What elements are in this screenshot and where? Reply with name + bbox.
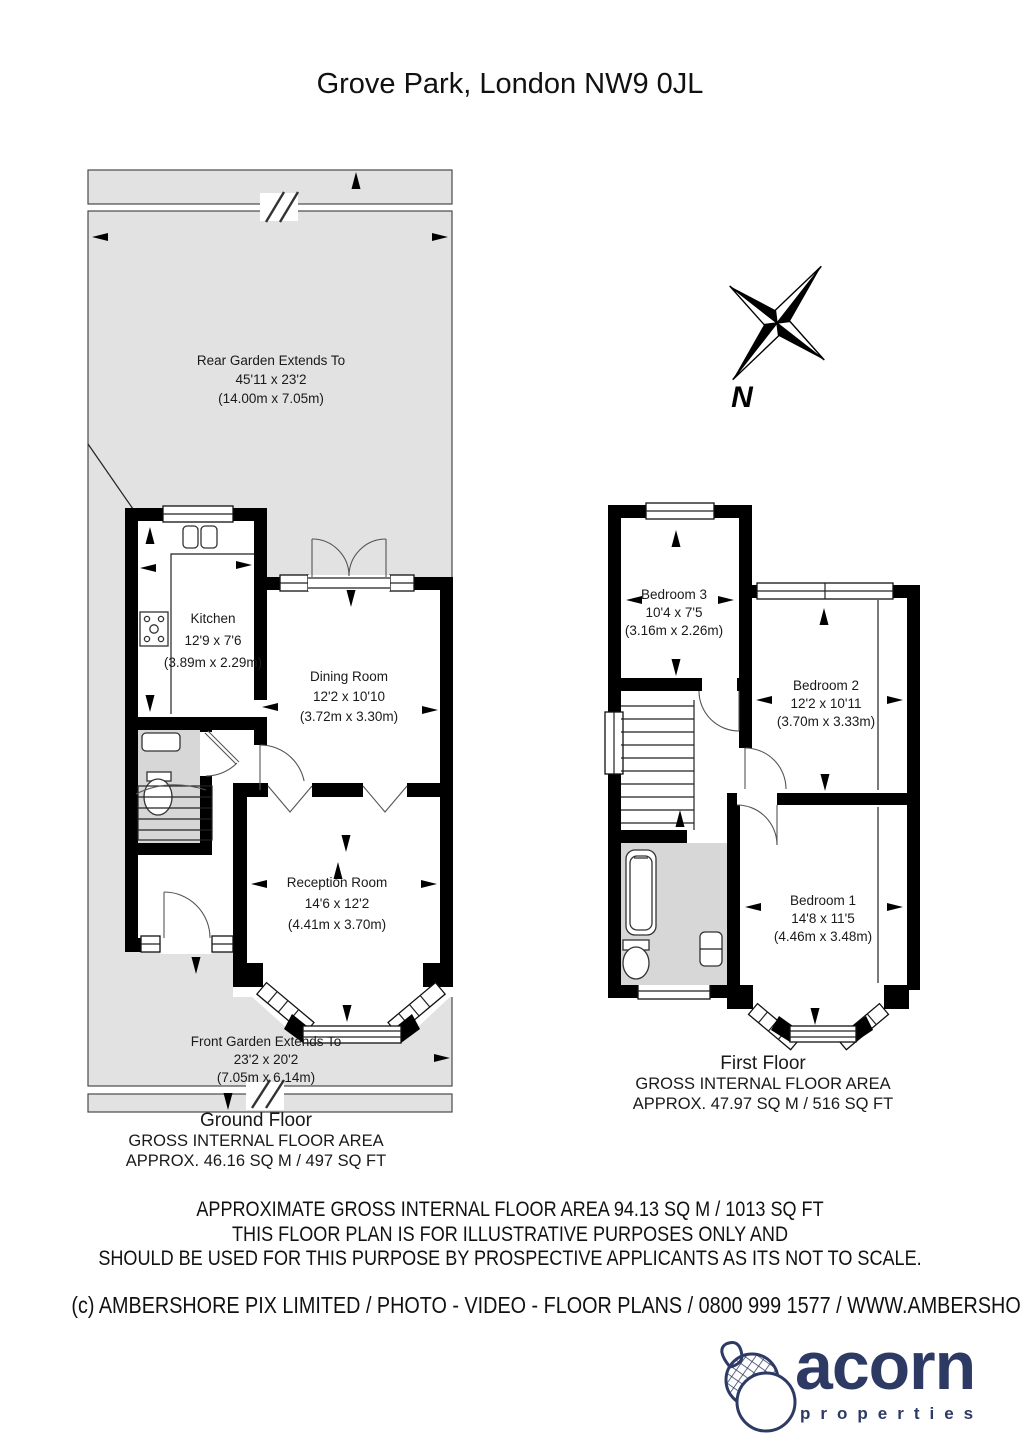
first-floor-area-label: GROSS INTERNAL FLOOR AREA <box>635 1075 890 1093</box>
kitchen-label: Kitchen <box>190 611 235 626</box>
wc-basin <box>142 733 180 751</box>
bedroom2-label: Bedroom 2 <box>793 678 859 693</box>
reception-room-label: Reception Room <box>287 875 388 890</box>
disclaimer-line-1: APPROXIMATE GROSS INTERNAL FLOOR AREA 94… <box>71 1198 948 1222</box>
acorn-icon <box>708 1340 798 1435</box>
logo-tagline-text: properties <box>800 1404 983 1424</box>
disclaimer-line-3: SHOULD BE USED FOR THIS PURPOSE BY PROSP… <box>71 1247 948 1271</box>
bedroom3-size-metric: (3.16m x 2.26m) <box>625 623 723 638</box>
disclaimer-line-2: THIS FLOOR PLAN IS FOR ILLUSTRATIVE PURP… <box>71 1223 948 1247</box>
floorplan-page: Grove Park, London NW9 0JL <box>0 0 1020 1441</box>
kitchen-hob <box>140 612 168 646</box>
dining-room-label: Dining Room <box>310 669 388 684</box>
compass-north-label: N <box>731 381 754 414</box>
ground-floor-plan: Rear Garden Extends To 45'11 x 23'2 (14.… <box>88 170 453 1170</box>
bedroom1-label: Bedroom 1 <box>790 893 856 908</box>
kitchen-window <box>163 506 233 522</box>
bedroom2-size-metric: (3.70m x 3.33m) <box>777 714 875 729</box>
reception-room-size-metric: (4.41m x 3.70m) <box>288 917 386 932</box>
kitchen-size-imperial: 12'9 x 7'6 <box>185 633 242 648</box>
bathroom <box>621 843 727 985</box>
first-floor-plan: Bedroom 3 10'4 x 7'5 (3.16m x 2.26m) Bed… <box>605 503 920 1113</box>
ground-floor-caption: Ground Floor <box>200 1110 313 1131</box>
bedroom3-size-imperial: 10'4 x 7'5 <box>646 605 703 620</box>
kitchen-size-metric: (3.89m x 2.29m) <box>164 655 262 670</box>
bedroom1-size-imperial: 14'8 x 11'5 <box>791 911 854 926</box>
dining-room-size-metric: (3.72m x 3.30m) <box>300 709 398 724</box>
reception-room-size-imperial: 14'6 x 12'2 <box>305 896 369 911</box>
dining-room-size-imperial: 12'2 x 10'10 <box>313 689 385 704</box>
agency-logo: acorn properties <box>700 1332 1010 1437</box>
bedroom2-size-imperial: 12'2 x 10'11 <box>791 696 862 711</box>
kitchen-sink <box>183 526 198 548</box>
ground-floor-area-label: GROSS INTERNAL FLOOR AREA <box>128 1132 383 1150</box>
rear-garden-size-imperial: 45'11 x 23'2 <box>236 372 307 387</box>
rear-garden-label: Rear Garden Extends To <box>197 353 345 368</box>
compass-icon: N <box>730 266 825 414</box>
front-garden-size-imperial: 23'2 x 20'2 <box>234 1052 298 1067</box>
toilet <box>623 947 649 979</box>
front-garden-size-metric: (7.05m x 6.14m) <box>217 1070 315 1085</box>
copyright-line: (c) AMBERSHORE PIX LIMITED / PHOTO - VID… <box>71 1292 948 1319</box>
front-garden-label: Front Garden Extends To <box>191 1034 342 1049</box>
bedroom3-label: Bedroom 3 <box>641 587 707 602</box>
first-floor-caption: First Floor <box>720 1053 806 1074</box>
first-floor-area-value: APPROX. 47.97 SQ M / 516 SQ FT <box>633 1095 893 1113</box>
bedroom1-size-metric: (4.46m x 3.48m) <box>774 929 872 944</box>
garden-break-top <box>260 192 298 222</box>
rear-garden-size-metric: (14.00m x 7.05m) <box>218 391 324 406</box>
ground-floor-area-value: APPROX. 46.16 SQ M / 497 SQ FT <box>126 1152 386 1170</box>
logo-brand-text: acorn <box>795 1332 975 1400</box>
